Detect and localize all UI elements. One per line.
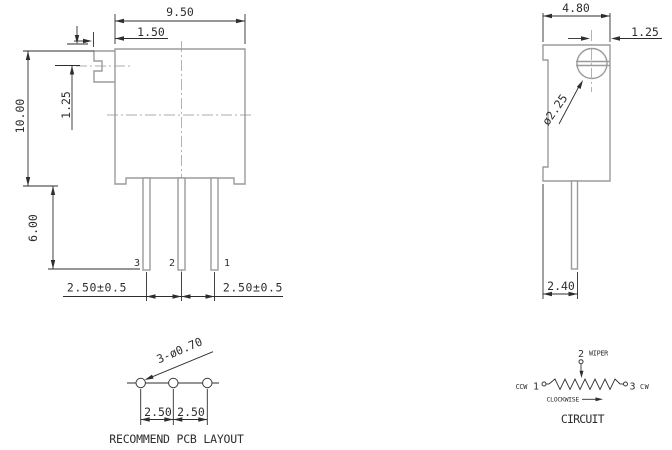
arrowhead: [611, 36, 620, 40]
pin-2: [178, 178, 185, 270]
arrowhead: [51, 186, 55, 195]
dim-text-pin-row: 2.40: [547, 279, 575, 293]
arrowhead: [75, 35, 79, 44]
arrowhead: [577, 80, 583, 89]
dim-text-slot-center: 1.25: [59, 91, 73, 119]
arrowhead: [26, 51, 30, 60]
dim-text-screw-protrusion: 1.50: [137, 25, 165, 39]
dim-text-screw-diameter: ø2.25: [539, 92, 570, 128]
dim-text-screw-offset: 1.25: [631, 25, 659, 39]
arrowhead: [51, 260, 55, 269]
cw-pin-number: 3: [629, 382, 635, 393]
arrowhead: [543, 14, 552, 18]
dim-text-pad-pitch-left: 2.50: [144, 405, 172, 419]
front-view: 9.50 1.50 1.25 10.00 6.00 3 2 1: [13, 5, 283, 301]
arrowhead: [115, 19, 124, 23]
arrowhead: [70, 66, 74, 75]
arrowhead: [206, 294, 215, 298]
pin-3: [143, 178, 150, 270]
technical-drawing-page: 9.50 1.50 1.25 10.00 6.00 3 2 1: [0, 0, 672, 450]
circuit-diagram: 2 WIPER CCW 1 3 CW CLOCKWISE CIRCUIT: [516, 349, 650, 426]
circuit-caption: CIRCUIT: [561, 412, 605, 426]
terminal-1-node: [542, 382, 546, 386]
arrowhead: [26, 177, 30, 186]
dim-text-body-height: 10.00: [13, 99, 27, 134]
cw-label: CW: [640, 383, 650, 391]
wiper-pin-number: 2: [578, 349, 584, 360]
trimmer-potentiometer-drawing: 9.50 1.50 1.25 10.00 6.00 3 2 1: [0, 0, 672, 450]
arrowhead: [173, 294, 182, 298]
dim-text-body-width: 9.50: [166, 5, 194, 19]
pad-hole-3: [136, 378, 145, 387]
pin3-label: 3: [134, 258, 140, 269]
arrowhead: [580, 371, 584, 378]
pad-hole-1: [203, 378, 212, 387]
arrowhead: [83, 39, 92, 43]
pad-hole-2: [169, 378, 178, 387]
dim-text-pitch-right: 2.50±0.5: [223, 281, 283, 295]
arrowhead: [581, 36, 590, 40]
clockwise-label: CLOCKWISE: [547, 396, 580, 404]
hole-callout-text: 3-ø0.70: [154, 334, 204, 366]
pcb-layout-caption: RECOMMEND PCB LAYOUT: [109, 432, 244, 446]
arrowhead: [236, 19, 245, 23]
wiper-label: WIPER: [589, 350, 609, 358]
pin2-label: 2: [169, 258, 175, 269]
side-screw-protrusion-outline: [94, 51, 115, 82]
dim-text-pad-pitch-right: 2.50: [177, 405, 205, 419]
pin-1: [211, 178, 218, 270]
ccw-pin-number: 1: [533, 382, 539, 393]
terminal-3-node: [624, 382, 628, 386]
arrowhead: [596, 397, 604, 401]
arrowhead: [145, 375, 154, 380]
side-pin: [572, 181, 578, 269]
dim-text-pin-length: 6.00: [26, 214, 40, 242]
front-body-outline: [115, 49, 245, 184]
dim-text-body-depth: 4.80: [562, 1, 590, 15]
pin1-label: 1: [224, 258, 230, 269]
dim-text-pitch-left: 2.50±0.5: [67, 281, 127, 295]
terminal-2-node: [579, 360, 583, 364]
arrowhead: [115, 36, 124, 40]
resistor-zigzag: [549, 379, 620, 390]
arrowhead: [147, 294, 156, 298]
ccw-label: CCW: [516, 383, 529, 391]
pcb-layout: 3-ø0.70 2.50 2.50 RECOMMEND PCB LAYOUT: [109, 334, 244, 446]
arrowhead: [182, 294, 191, 298]
side-view: 4.80 1.25 ø2.25 2.40: [539, 1, 662, 299]
adjustment-screw: [577, 49, 607, 79]
arrowhead: [601, 14, 610, 18]
